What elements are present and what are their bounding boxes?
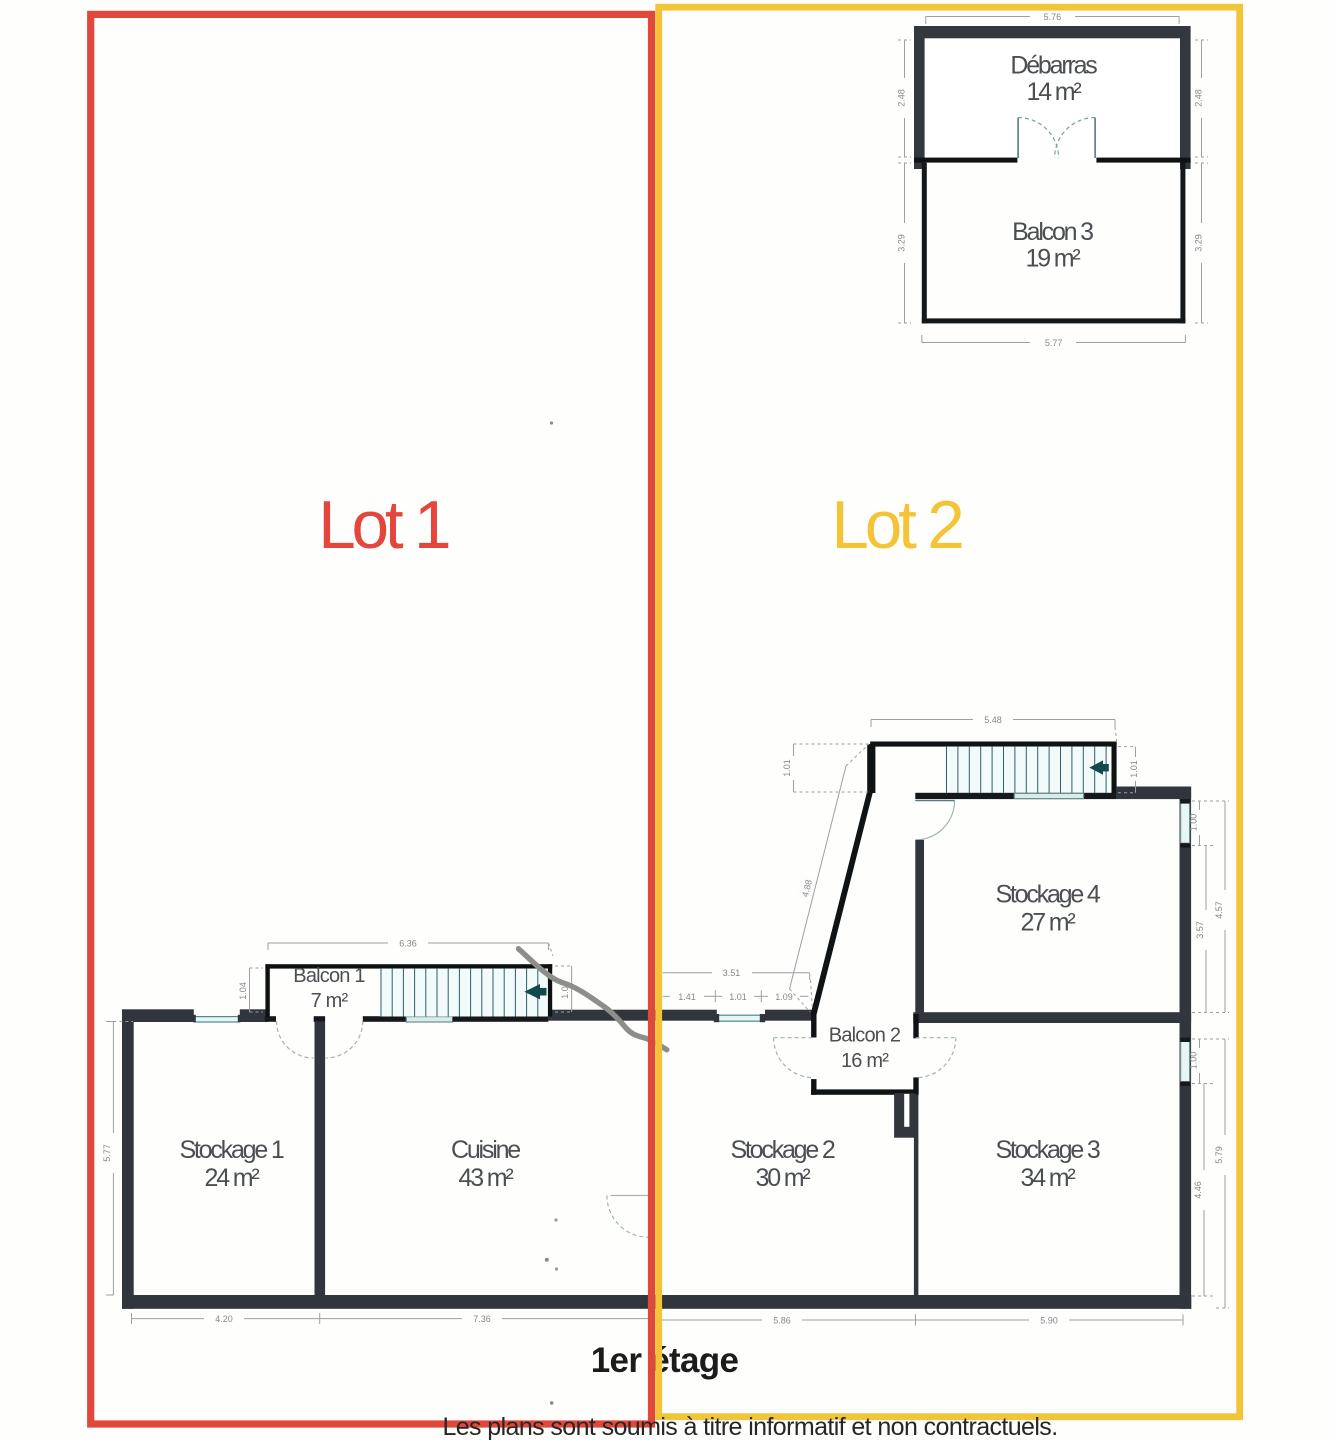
- svg-text:5.86: 5.86: [773, 1316, 791, 1326]
- svg-text:34 m²: 34 m²: [1021, 1164, 1076, 1192]
- svg-text:7.36: 7.36: [473, 1314, 491, 1324]
- svg-text:2.48: 2.48: [897, 89, 907, 107]
- svg-text:Balcon 3: Balcon 3: [1012, 218, 1093, 246]
- svg-text:1.04: 1.04: [238, 982, 248, 1000]
- svg-text:6.36: 6.36: [399, 939, 417, 949]
- svg-text:3.29: 3.29: [1194, 234, 1204, 252]
- svg-text:Lot 1: Lot 1: [318, 488, 449, 563]
- svg-text:Stockage 2: Stockage 2: [730, 1136, 834, 1164]
- svg-text:5.76: 5.76: [1044, 12, 1062, 22]
- svg-text:30 m²: 30 m²: [756, 1164, 811, 1192]
- svg-text:4.20: 4.20: [215, 1314, 233, 1324]
- svg-text:Débarras: Débarras: [1010, 52, 1097, 80]
- svg-text:1.09: 1.09: [775, 992, 793, 1002]
- svg-text:1.00: 1.00: [1189, 814, 1199, 832]
- svg-text:Stockage 1: Stockage 1: [179, 1136, 283, 1164]
- svg-text:1.41: 1.41: [678, 992, 696, 1002]
- svg-text:Balcon 2: Balcon 2: [829, 1025, 901, 1047]
- svg-text:Les plans sont soumis à titre: Les plans sont soumis à titre informatif…: [442, 1413, 1057, 1440]
- svg-text:27 m²: 27 m²: [1021, 909, 1076, 937]
- svg-text:1.01: 1.01: [729, 992, 747, 1002]
- svg-text:43 m²: 43 m²: [459, 1164, 514, 1192]
- svg-text:Balcon 1: Balcon 1: [293, 965, 365, 987]
- svg-text:Lot 2: Lot 2: [831, 488, 962, 563]
- svg-text:14 m²: 14 m²: [1027, 78, 1082, 106]
- svg-text:4.57: 4.57: [1214, 901, 1224, 919]
- svg-text:1.01: 1.01: [782, 759, 792, 777]
- svg-text:Stockage 4: Stockage 4: [995, 881, 1100, 909]
- svg-text:1.00: 1.00: [1189, 1052, 1199, 1070]
- svg-text:Stockage 3: Stockage 3: [995, 1136, 1099, 1164]
- svg-text:5.48: 5.48: [984, 715, 1002, 725]
- svg-text:3.29: 3.29: [897, 234, 907, 252]
- svg-text:7 m²: 7 m²: [311, 990, 349, 1012]
- svg-text:5.77: 5.77: [1045, 338, 1063, 348]
- svg-text:3.57: 3.57: [1195, 921, 1205, 939]
- svg-text:2.48: 2.48: [1194, 89, 1204, 107]
- svg-text:1er étage: 1er étage: [591, 1341, 739, 1380]
- svg-text:5.79: 5.79: [1214, 1146, 1224, 1164]
- svg-text:3.51: 3.51: [723, 968, 741, 978]
- svg-text:19 m²: 19 m²: [1026, 245, 1081, 273]
- svg-text:24 m²: 24 m²: [205, 1164, 260, 1192]
- svg-text:5.77: 5.77: [102, 1144, 112, 1162]
- svg-text:1.01: 1.01: [1129, 760, 1139, 778]
- svg-text:5.90: 5.90: [1040, 1316, 1058, 1326]
- svg-text:Cuisine: Cuisine: [451, 1136, 520, 1164]
- svg-text:4.46: 4.46: [1193, 1181, 1203, 1199]
- svg-text:16 m²: 16 m²: [841, 1050, 889, 1072]
